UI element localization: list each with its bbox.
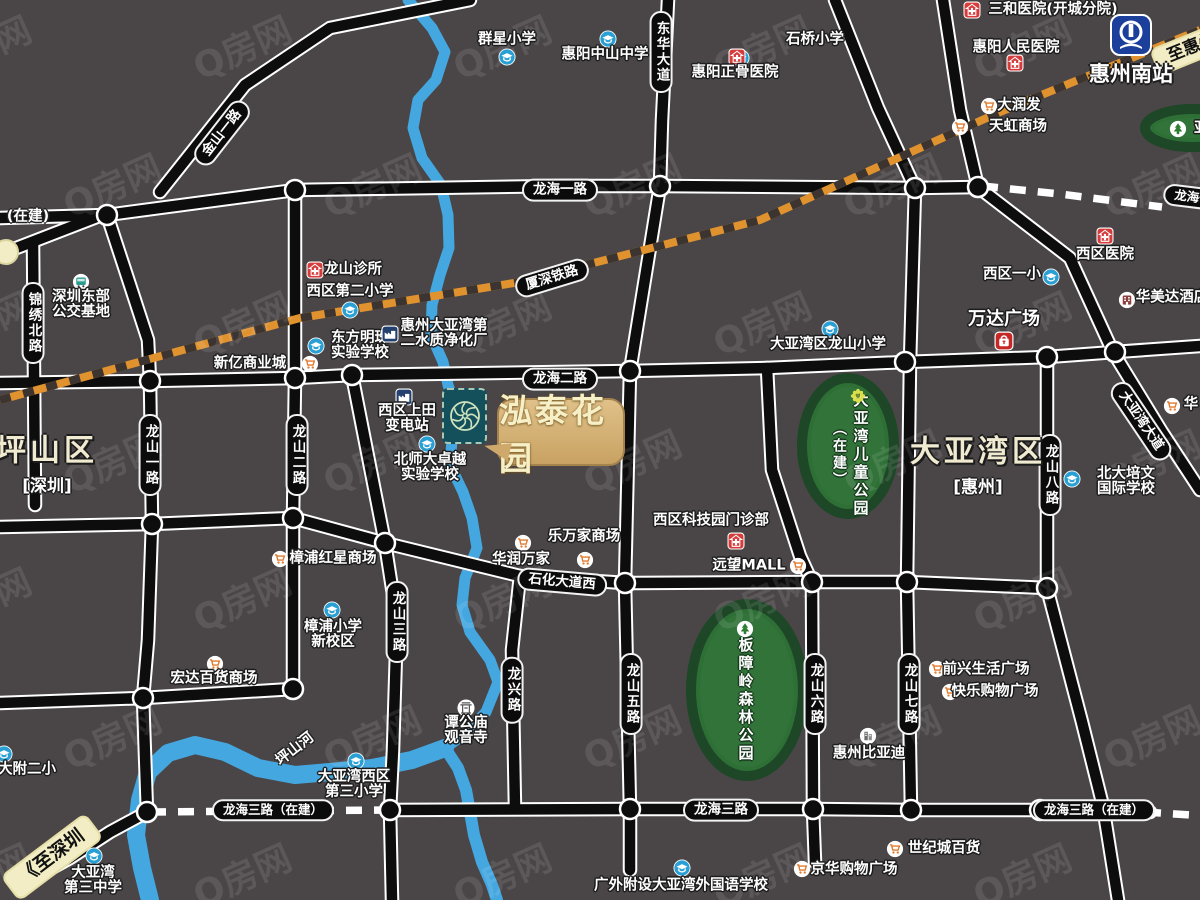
project-marker <box>442 388 487 444</box>
park-label: 大亚湾儿童公园 <box>851 392 872 518</box>
poi-label: 大亚湾第三中学 <box>64 866 122 896</box>
cart-icon <box>515 535 532 552</box>
hospital-icon <box>964 2 981 19</box>
mall-icon <box>995 332 1014 351</box>
road-label-pill: 龙山二路 <box>286 414 309 496</box>
school-icon <box>348 753 365 770</box>
tree-icon <box>737 621 754 638</box>
poi-label: 北大培文国际学校 <box>1097 467 1155 497</box>
poi-label: 西区科技园门诊部 <box>653 513 769 528</box>
poi-label: 惠阳正骨医院 <box>692 65 779 80</box>
park-label-status: （在建） <box>829 421 849 489</box>
school-icon <box>1043 269 1060 286</box>
school-icon <box>0 746 13 763</box>
road-label-pill: 龙山七路 <box>898 653 921 735</box>
project-name: 泓泰花园 <box>499 384 623 480</box>
hospital-icon <box>729 49 746 66</box>
cart-icon <box>981 98 998 115</box>
park-label: 亚 <box>1194 121 1200 136</box>
map-free-label: (在建) <box>7 205 49 226</box>
factory-icon <box>382 326 399 343</box>
station-name: 惠州南站 <box>1089 58 1173 88</box>
poi-label: 惠州大亚湾第二水质净化厂 <box>401 319 488 349</box>
poi-label: 大亚湾西区第三小学 <box>318 770 391 800</box>
poi-label: 群星小学 <box>478 32 536 47</box>
project-logo-icon <box>447 398 483 434</box>
poi-label: 广外附设大亚湾外国语学校 <box>594 878 768 893</box>
poi-label: 远望MALL <box>712 558 785 573</box>
railway-station-icon <box>1110 14 1152 56</box>
school-icon <box>86 848 103 865</box>
road-label-pill: 龙山六路 <box>804 653 827 735</box>
school-icon <box>419 436 436 453</box>
tree-icon <box>1170 121 1187 138</box>
poi-label: 樟浦红星商场 <box>290 551 377 566</box>
poi-label: 惠阳中山中学 <box>562 47 649 62</box>
hospital-icon <box>728 533 745 550</box>
poi-label: 西区第二小学 <box>307 284 394 299</box>
poi-label: 谭公庙观音寺 <box>444 716 488 746</box>
poi-label: 东方明珠实验学校 <box>331 331 389 361</box>
poi-label: 惠州比亚迪 <box>833 746 906 761</box>
cart-icon <box>302 356 319 373</box>
region-label-pingshan: 坪山区 [深圳] <box>0 426 98 497</box>
hotel-icon <box>1119 292 1136 309</box>
cart-icon <box>790 558 807 575</box>
poi-label: 万达广场 <box>968 311 1040 330</box>
building-icon <box>860 728 877 745</box>
hospital-icon <box>1007 55 1024 72</box>
road-label-pill: 龙山一路 <box>139 414 162 496</box>
poi-label: 惠阳人民医院 <box>973 40 1060 55</box>
poi-label: 北师大卓越实验学校 <box>394 453 467 483</box>
cart-icon <box>952 119 969 136</box>
school-icon <box>822 321 839 338</box>
poi-label: 世纪城百货 <box>908 841 981 856</box>
poi-label: 京华购物广场 <box>811 862 898 877</box>
poi-label: 华 <box>1184 397 1199 412</box>
poi-label: 西区医院 <box>1076 247 1134 262</box>
cart-icon <box>272 551 289 568</box>
poi-label: 宏达百货商场 <box>171 671 258 686</box>
cart-icon <box>577 552 594 569</box>
poi-label: 华美达酒店 <box>1136 290 1200 305</box>
school-icon <box>499 49 516 66</box>
poi-label: 快乐购物广场 <box>952 684 1039 699</box>
poi-label: 大附二小 <box>0 762 56 777</box>
road-label-pill: 龙山五路 <box>620 653 643 735</box>
poi-label: 龙山诊所 <box>324 262 382 277</box>
hospital-icon <box>307 262 324 279</box>
school-icon <box>324 602 341 619</box>
poi-label: 大亚湾区龙山小学 <box>770 337 886 352</box>
cart-icon <box>887 841 904 858</box>
poi-label: 深圳东部公交基地 <box>52 290 110 320</box>
road-label-pill: 龙海三路（在建） <box>212 799 334 821</box>
project-bubble: 泓泰花园 <box>497 398 625 466</box>
poi-label: 樟浦小学新校区 <box>304 620 362 650</box>
poi-label: 石桥小学 <box>786 32 844 47</box>
road-label-pill: 龙海三路 <box>683 799 759 822</box>
map-canvas[interactable]: Q房网Q房网Q房网Q房网Q房网Q房网Q房网Q房网Q房网Q房网Q房网Q房网Q房网Q… <box>0 0 1200 900</box>
poi-label: 新亿商业城 <box>214 356 287 371</box>
station-huizhou-south: 惠州南站 <box>1089 14 1173 88</box>
poi-label: 乐万家商场 <box>548 529 621 544</box>
poi-label: 华润万家 <box>492 552 550 567</box>
road-label-pill: 龙海三路（在建） <box>1033 799 1155 821</box>
road-label-pill: 东华大道 <box>650 11 673 93</box>
school-icon <box>600 31 617 48</box>
poi-label: 西区一小 <box>983 267 1041 282</box>
flower-icon <box>850 388 866 404</box>
poi-label: 大润发 <box>997 98 1041 113</box>
park-label: 板障岭森林公园 <box>736 637 757 763</box>
cart-icon <box>1164 398 1181 415</box>
poi-label: 前兴生活广场 <box>943 662 1030 677</box>
school-icon <box>674 860 691 877</box>
road-label-pill: 锦绣北路 <box>22 282 45 364</box>
school-icon <box>342 302 359 319</box>
school-icon <box>1064 471 1081 488</box>
school-icon <box>308 338 325 355</box>
road-label-pill: 龙兴路 <box>501 657 524 724</box>
cart-icon <box>794 861 811 878</box>
poi-label: 天虹商场 <box>989 119 1047 134</box>
region-label-dayawan: 大亚湾区 [惠州] <box>910 427 1046 498</box>
road-label-pill: 龙海一路 <box>522 179 598 202</box>
road-label-pill: 龙山三路 <box>386 581 409 663</box>
hospital-icon <box>1097 228 1114 245</box>
poi-label: 西区上田变电站 <box>378 404 436 434</box>
